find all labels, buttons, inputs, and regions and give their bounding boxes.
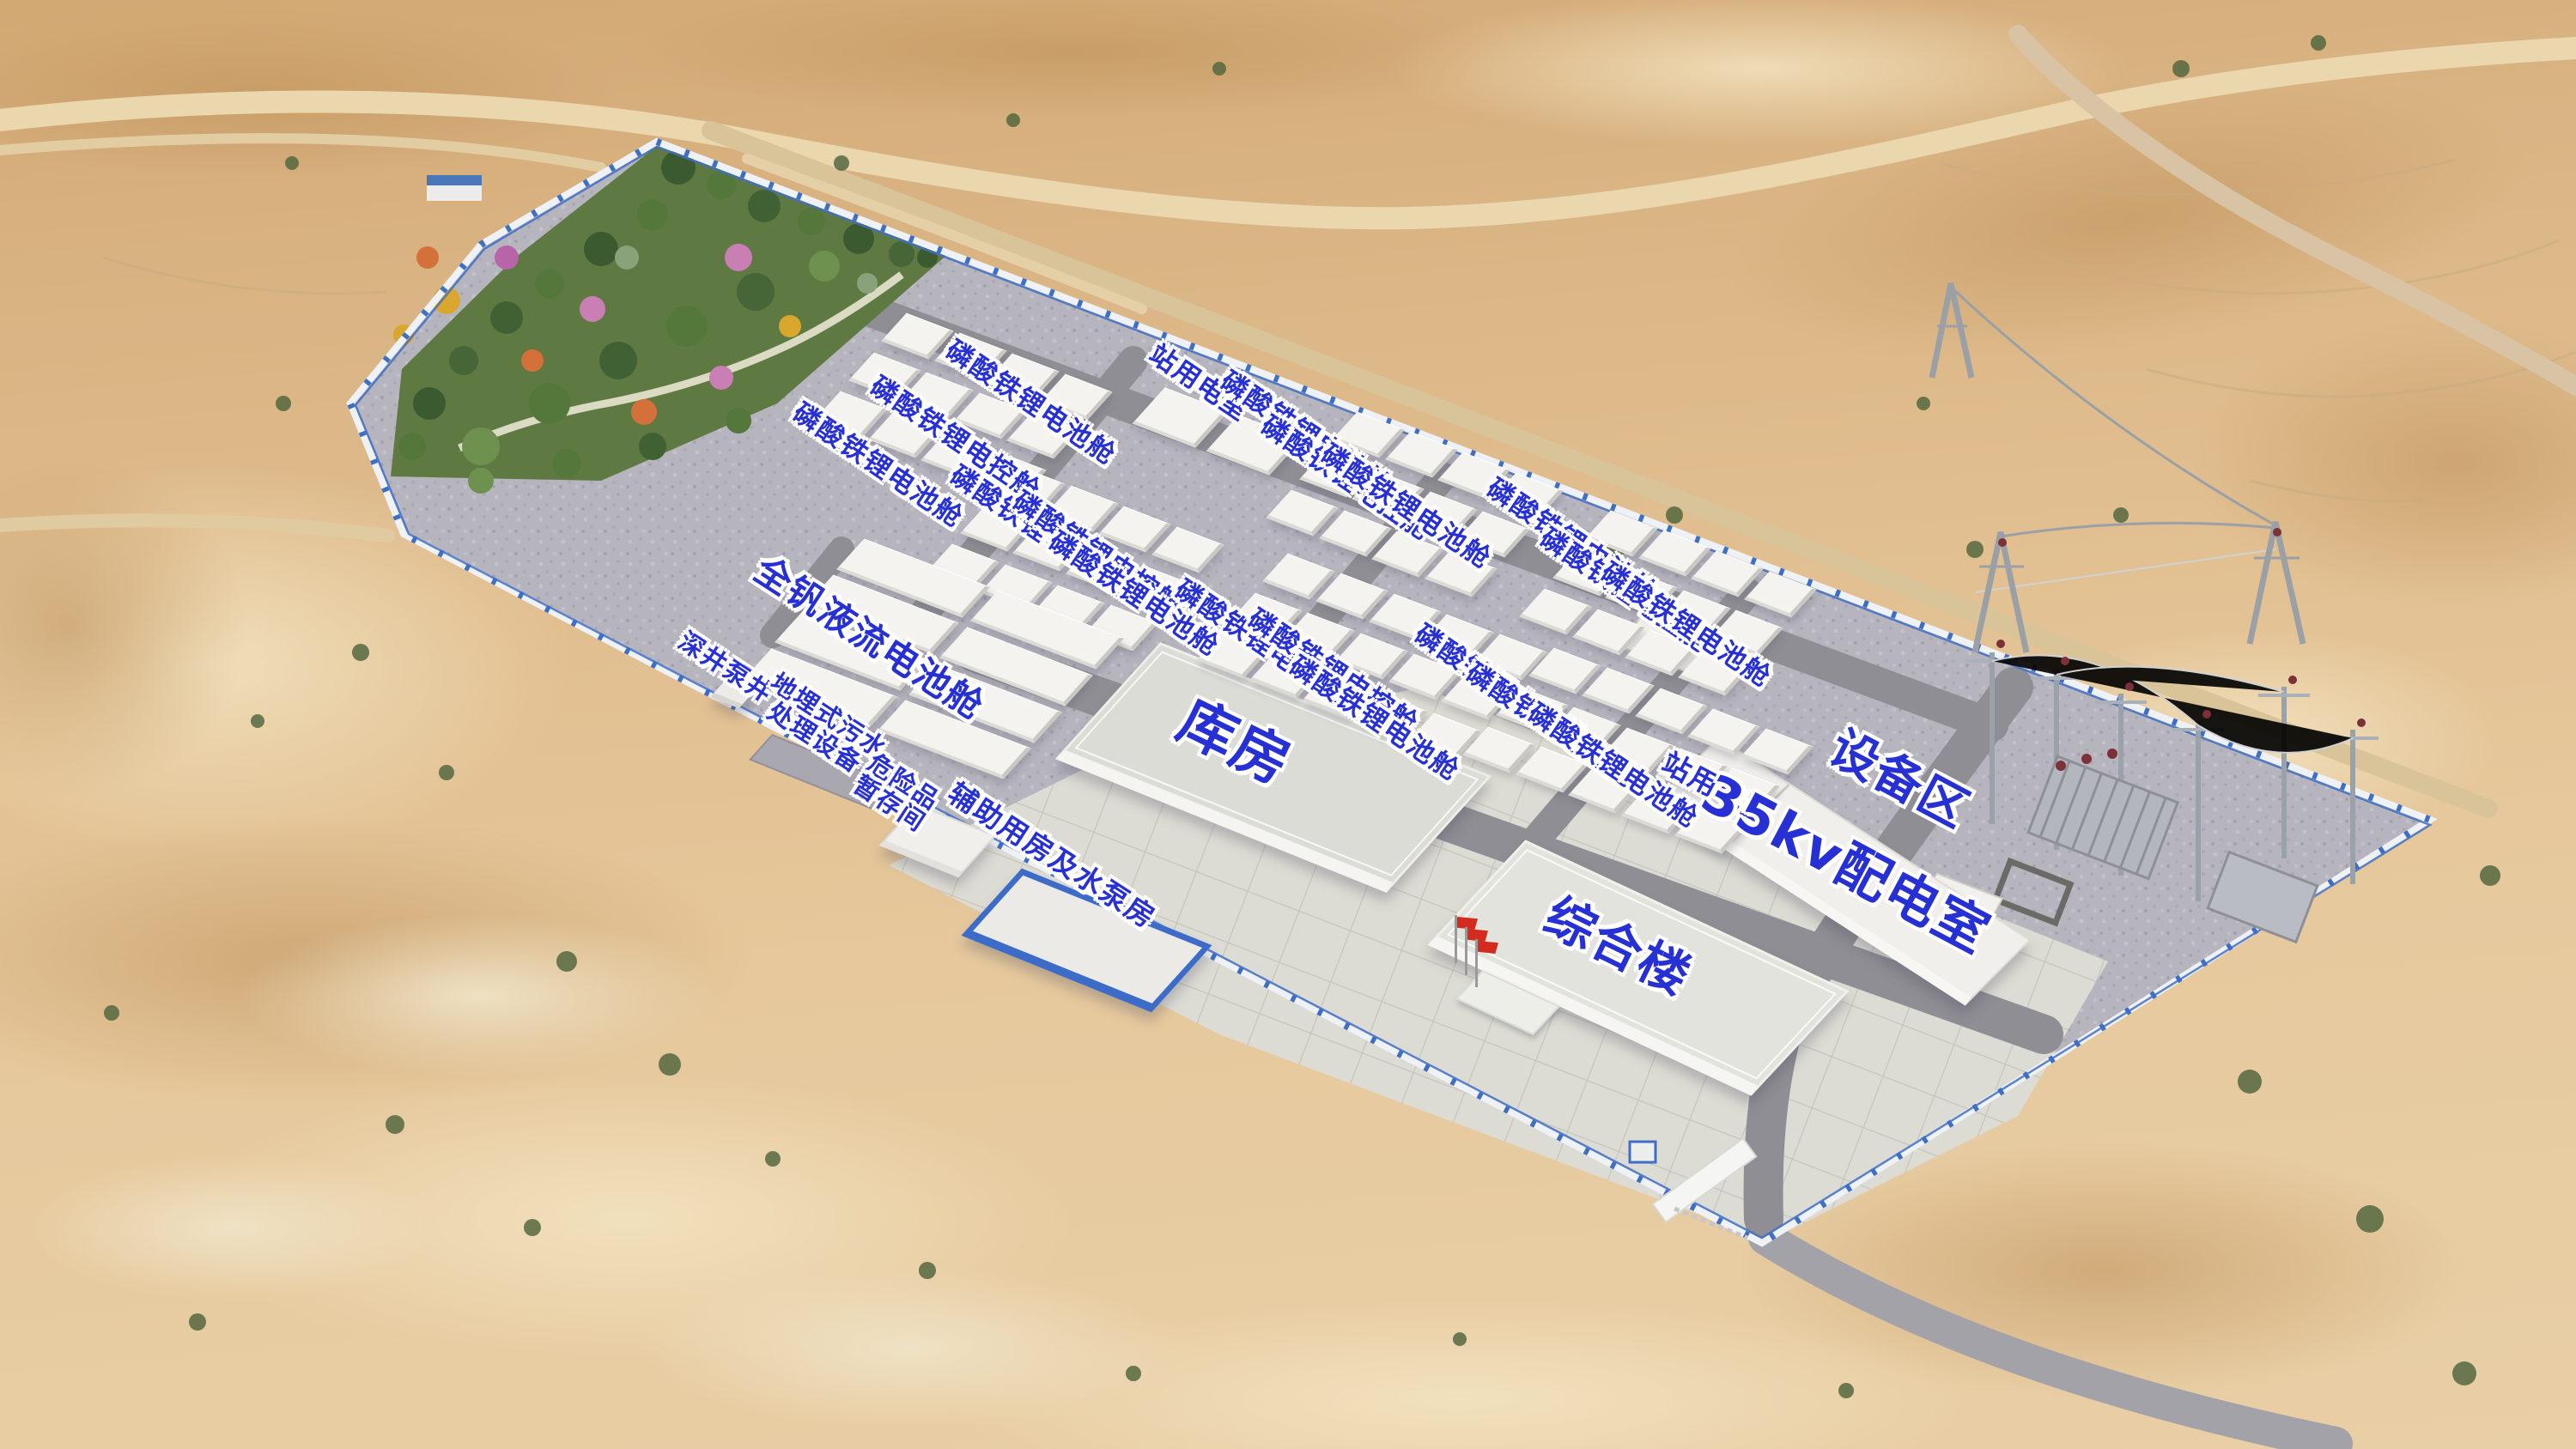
label-office-building: 综合楼 xyxy=(1537,890,1698,1003)
label-battery-cabin-8: 磷酸铁锂电池舱 xyxy=(1284,652,1463,785)
label-battery-cabin-10: 磷酸铁锂电池舱 xyxy=(1595,559,1775,692)
label-auxiliary-pump-house: 辅助用房及水泵房 xyxy=(943,779,1160,934)
label-warehouse: 库房 xyxy=(1170,691,1300,794)
label-equipment-area: 设备区 xyxy=(1822,723,1977,836)
site-labels-layer: 磷酸铁锂电池舱磷酸铁锂电控舱磷酸铁锂电池舱站用电室磷酸铁锂电池舱磷酸铁锂电控舱磷… xyxy=(0,0,2576,1449)
label-battery-cabin-4: 磷酸铁锂电池舱 xyxy=(1315,440,1495,573)
aerial-site-render: { "scene": { "title": "储能电站鸟瞰效果图", "sett… xyxy=(0,0,2576,1449)
